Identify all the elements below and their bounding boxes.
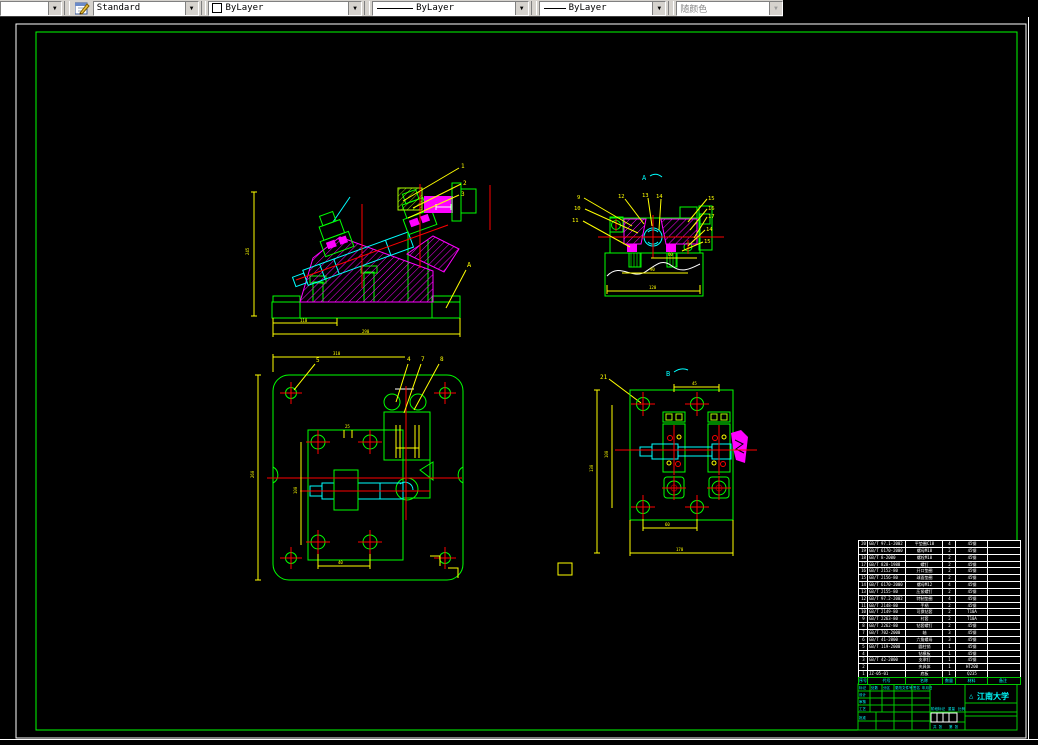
parts-cell: [988, 548, 1020, 554]
text-style-icon[interactable]: [74, 1, 91, 16]
parts-cell: 45钢: [956, 589, 988, 595]
linetype-value: ByLayer: [413, 3, 515, 13]
parts-cell: 3: [943, 637, 956, 643]
linetype-combo[interactable]: ByLayer ▼: [372, 1, 529, 16]
svg-text:12: 12: [618, 194, 625, 200]
plot-style-value: 随颜色: [677, 2, 769, 15]
parts-row: 16GB/T 2152-80开口垫圈245钢: [859, 568, 1020, 575]
parts-cell: [988, 562, 1020, 568]
university-logo-icon: △: [969, 692, 974, 700]
svg-text:4: 4: [407, 356, 411, 363]
section-a-view[interactable]: A: [572, 174, 724, 296]
parts-cell: 手柄: [906, 603, 943, 609]
chevron-down-icon[interactable]: ▼: [652, 2, 665, 15]
parts-cell: 钻套螺钉: [906, 623, 943, 629]
plot-style-combo: 随颜色 ▼: [676, 1, 783, 16]
cad-application-window: ▼ Standard ▼ ByLayer ▼ ByLayer: [0, 0, 1038, 745]
parts-row: 20GB/T 97.1-2002平垫圈C10445钢: [859, 541, 1020, 548]
parts-cell: 支承钉: [906, 657, 943, 663]
parts-cell: GB/T 6170-2000: [868, 582, 906, 588]
parts-row: 10GB/T 2149-80可换钻套2T10A: [859, 609, 1020, 616]
parts-cell: 17: [859, 562, 868, 568]
parts-cell: GB/T 2149-80: [868, 609, 906, 615]
parts-cell: 2: [943, 616, 956, 622]
svg-text:签名: 签名: [913, 685, 920, 690]
parts-row: 14GB/T 6170-2000螺母M12445钢: [859, 582, 1020, 589]
parts-cell: 2: [859, 664, 868, 670]
leader-label: 3: [461, 191, 465, 198]
parts-cell: [988, 596, 1020, 602]
parts-row: 4钻模板145钢: [859, 651, 1020, 658]
parts-table-body: 20GB/T 97.1-2002平垫圈C10445钢19GB/T 6170-20…: [859, 541, 1020, 678]
leader-labels: 1 2 3 A: [461, 163, 472, 269]
parts-row: 3GB/T 42-2000支承钉145钢: [859, 657, 1020, 664]
parts-cell: 4: [943, 541, 956, 547]
parts-cell: [868, 651, 906, 657]
parts-cell: [988, 609, 1020, 615]
parts-cell: 压紧螺钉: [906, 589, 943, 595]
centerlines: [267, 386, 462, 520]
parts-col-header: 名称: [906, 678, 943, 684]
parts-row: 15GB/T 2156-80球面垫圈245钢: [859, 575, 1020, 582]
parts-cell: [988, 575, 1020, 581]
svg-text:工艺: 工艺: [859, 706, 867, 711]
parts-cell: 45钢: [956, 623, 988, 629]
svg-text:7: 7: [421, 356, 425, 363]
svg-text:245: 245: [245, 247, 250, 255]
parts-cell: 45钢: [956, 596, 988, 602]
toolbar-separator: [201, 1, 207, 15]
svg-text:90: 90: [650, 267, 655, 272]
parts-cell: GB/T 2155-80: [868, 589, 906, 595]
parts-col-header: 序号: [859, 678, 868, 684]
parts-cell: [988, 582, 1020, 588]
parts-cell: 圆柱销: [906, 644, 943, 650]
object-color-value: ByLayer: [222, 3, 348, 13]
parts-cell: 45钢: [956, 657, 988, 663]
parts-cell: T10A: [956, 609, 988, 615]
svg-text:8: 8: [440, 356, 444, 363]
parts-cell: 45钢: [956, 548, 988, 554]
university-name: 江南大学: [977, 691, 1009, 701]
parts-cell: [988, 623, 1020, 629]
svg-text:标记: 标记: [859, 685, 867, 690]
object-color-combo[interactable]: ByLayer ▼: [208, 1, 362, 16]
parts-cell: [988, 651, 1020, 657]
svg-text:290: 290: [362, 329, 370, 334]
svg-text:年月日: 年月日: [922, 685, 933, 690]
parts-cell: 六角螺母: [906, 637, 943, 643]
parts-cell: 1: [943, 651, 956, 657]
svg-text:17: 17: [708, 214, 715, 220]
svg-text:处数: 处数: [871, 685, 879, 690]
parts-col-header: 材料: [956, 678, 988, 684]
parts-cell: 4: [943, 596, 956, 602]
parts-cell: 3: [859, 657, 868, 663]
section-mark: B: [666, 370, 670, 378]
parts-cell: T10A: [956, 616, 988, 622]
parts-col-header: 代号: [868, 678, 906, 684]
parts-cell: 11: [859, 603, 868, 609]
parts-cell: GB/T 119-2000: [868, 644, 906, 650]
parts-row: 5GB/T 119-2000圆柱销145钢: [859, 644, 1020, 651]
parts-cell: 9: [859, 616, 868, 622]
parts-cell: 螺栓M10: [906, 555, 943, 561]
parts-cell: GB/T 828-1988: [868, 562, 906, 568]
svg-text:第 张: 第 张: [949, 724, 959, 729]
svg-text:100: 100: [604, 450, 609, 458]
svg-text:40: 40: [338, 560, 343, 565]
svg-text:130: 130: [589, 464, 594, 472]
chevron-down-icon: ▼: [769, 2, 782, 15]
parts-cell: GB/T 2263-80: [868, 616, 906, 622]
parts-cell: 45钢: [956, 637, 988, 643]
parts-row: 6GB/T 41-2000六角螺母345钢: [859, 637, 1020, 644]
parts-cell: 4: [859, 651, 868, 657]
parts-cell: [988, 555, 1020, 561]
parts-cell: 45钢: [956, 582, 988, 588]
svg-text:分区: 分区: [883, 685, 891, 690]
parts-cell: [988, 589, 1020, 595]
svg-text:15: 15: [704, 239, 711, 245]
view-b[interactable]: B 21: [589, 369, 757, 556]
chevron-down-icon[interactable]: ▼: [185, 2, 198, 15]
parts-cell: GB/T 2148-80: [868, 603, 906, 609]
parts-cell: 16: [859, 568, 868, 574]
leader-line: [609, 379, 641, 403]
parts-row: 8GB/T 2262-80钻套螺钉245钢: [859, 623, 1020, 630]
lineweight-combo[interactable]: ByLayer ▼: [539, 1, 667, 16]
parts-cell: 2: [943, 555, 956, 561]
leader-label: 21: [600, 374, 608, 381]
parts-cell: 45钢: [956, 555, 988, 561]
parts-cell: 2: [943, 548, 956, 554]
parts-cell: 2: [943, 609, 956, 615]
parts-cell: [988, 568, 1020, 574]
chevron-down-icon[interactable]: ▼: [348, 2, 361, 15]
parts-cell: [988, 630, 1020, 636]
parts-cell: GB/T 97.2-2002: [868, 596, 906, 602]
parts-cell: 2: [943, 603, 956, 609]
parts-cell: GB/T 8-2000: [868, 555, 906, 561]
toolbar-separator: [668, 1, 674, 15]
svg-text:60: 60: [668, 252, 673, 257]
svg-text:13: 13: [642, 193, 649, 199]
parts-row: 12GB/T 97.2-2002特制垫圈445钢: [859, 596, 1020, 603]
parts-cell: 螺钉: [906, 562, 943, 568]
svg-text:重量: 重量: [948, 706, 956, 711]
svg-text:60: 60: [665, 522, 670, 527]
svg-text:共 张: 共 张: [933, 724, 943, 729]
parts-cell: 8: [859, 623, 868, 629]
svg-text:设计: 设计: [859, 692, 867, 697]
svg-text:批准: 批准: [859, 715, 867, 720]
parts-cell: 2: [943, 562, 956, 568]
parts-cell: [988, 657, 1020, 663]
parts-cell: 1: [943, 657, 956, 663]
hatch-right: [661, 219, 697, 244]
parts-cell: GB/T 41-2000: [868, 637, 906, 643]
parts-cell: 14: [859, 582, 868, 588]
section-arrow-label: A: [467, 261, 472, 269]
parts-row: 19GB/T 6170-2000螺母M10245钢: [859, 548, 1020, 555]
front-view[interactable]: 1 2 3 A 245 110 290: [245, 163, 490, 337]
linetype-sample-icon: [377, 8, 413, 9]
parts-cell: 可换钻套: [906, 609, 943, 615]
parts-cell: GB/T 2262-80: [868, 623, 906, 629]
parts-row: 13GB/T 2155-80压紧螺钉245钢: [859, 589, 1020, 596]
parts-cell: 20: [859, 541, 868, 547]
parts-cell: [988, 541, 1020, 547]
parts-cell: 夹具体: [906, 664, 943, 670]
text-style-combo[interactable]: Standard ▼: [93, 1, 199, 16]
parts-cell: 2: [943, 589, 956, 595]
parts-list-table: 20GB/T 97.1-2002平垫圈C10445钢19GB/T 6170-20…: [858, 540, 1021, 679]
parts-cell: 18: [859, 555, 868, 561]
parts-cell: HT200: [956, 664, 988, 670]
parts-cell: 3: [943, 630, 956, 636]
stage-mark-boxes: [931, 713, 957, 722]
parts-cell: 钻模板: [906, 651, 943, 657]
parts-cell: 2: [943, 568, 956, 574]
parts-cell: GB/T 2152-80: [868, 568, 906, 574]
parts-cell: [988, 603, 1020, 609]
parts-cell: 45钢: [956, 568, 988, 574]
svg-text:310: 310: [333, 351, 341, 356]
toolbar-separator: [364, 1, 370, 15]
svg-text:16: 16: [708, 206, 715, 212]
svg-text:比例: 比例: [958, 706, 966, 711]
parts-row: 2夹具体1HT200: [859, 664, 1020, 671]
parts-cell: 6: [859, 637, 868, 643]
svg-text:100: 100: [293, 486, 298, 494]
svg-text:14: 14: [656, 194, 663, 200]
svg-text:更改文件号: 更改文件号: [895, 685, 913, 690]
parts-cell: 螺母M12: [906, 582, 943, 588]
svg-text:120: 120: [649, 285, 657, 290]
leader-lines: [294, 364, 439, 413]
parts-row: 9GB/T 2263-80衬套2T10A: [859, 616, 1020, 623]
adjusting-nut-assembly: [398, 183, 476, 221]
svg-text:14: 14: [706, 227, 713, 233]
parts-cell: GB/T 6170-2000: [868, 548, 906, 554]
parts-cell: 12: [859, 596, 868, 602]
svg-text:15: 15: [708, 196, 715, 202]
parts-cell: 7: [859, 630, 868, 636]
chevron-down-icon[interactable]: ▼: [515, 2, 528, 15]
svg-text:260: 260: [250, 470, 255, 478]
parts-cell: 螺母M10: [906, 548, 943, 554]
parts-cell: 45钢: [956, 575, 988, 581]
parts-row: 7GB/T 702-2000轴345钢: [859, 630, 1020, 637]
parts-cell: [988, 644, 1020, 650]
parts-cell: [868, 664, 906, 670]
parts-row: 11GB/T 2148-80手柄245钢: [859, 603, 1020, 610]
parts-cell: 特制垫圈: [906, 596, 943, 602]
parts-cell: 19: [859, 548, 868, 554]
parts-cell: 45钢: [956, 651, 988, 657]
chevron-down-icon[interactable]: ▼: [48, 2, 61, 15]
toolbar-separator: [64, 1, 70, 15]
svg-text:阶段标记: 阶段标记: [931, 706, 945, 711]
text-style-icon-glyph: [75, 1, 90, 15]
section-mark: A: [642, 174, 647, 182]
seat-left: [627, 244, 637, 252]
svg-text:5: 5: [316, 357, 320, 364]
parts-cell: 平垫圈C10: [906, 541, 943, 547]
toolbar-separator: [531, 1, 537, 15]
layer-combo-partial[interactable]: ▼: [0, 1, 62, 16]
title-block: 标记 处数 分区 更改文件号 签名 年月日 设计 审核 工艺 批准 阶段标记 重…: [858, 684, 1017, 730]
parts-cell: 4: [943, 582, 956, 588]
parts-cell: 1: [943, 644, 956, 650]
parts-cell: GB/T 2156-80: [868, 575, 906, 581]
svg-text:11: 11: [572, 218, 579, 224]
sub-plate-holes: [306, 430, 382, 554]
parts-row: 17GB/T 828-1988螺钉245钢: [859, 562, 1020, 569]
svg-text:审核: 审核: [859, 699, 867, 704]
color-swatch-icon: [212, 3, 222, 13]
svg-text:45: 45: [692, 381, 697, 386]
parts-cell: [988, 664, 1020, 670]
leader-label: 2: [463, 180, 467, 187]
parts-cell: 开口垫圈: [906, 568, 943, 574]
section-mark-line: [674, 369, 688, 372]
seat-right: [666, 244, 676, 252]
lineweight-sample-icon: [544, 8, 566, 9]
svg-text:25: 25: [345, 424, 350, 429]
parts-cell: 10: [859, 609, 868, 615]
parts-cell: 衬套: [906, 616, 943, 622]
parts-cell: [988, 637, 1020, 643]
parts-cell: GB/T 702-2000: [868, 630, 906, 636]
parts-list-header: 序号 代号 名称 数量 材料 备注: [858, 677, 1021, 685]
svg-text:110: 110: [300, 318, 308, 323]
parts-cell: 45钢: [956, 541, 988, 547]
text-style-value: Standard: [94, 3, 185, 13]
parts-col-header: 数量: [943, 678, 956, 684]
dimensions: [255, 354, 572, 580]
svg-text:10: 10: [574, 206, 581, 212]
parts-cell: 2: [943, 575, 956, 581]
parts-cell: 5: [859, 644, 868, 650]
parts-cell: 13: [859, 589, 868, 595]
parts-cell: 15: [859, 575, 868, 581]
properties-toolbar: ▼ Standard ▼ ByLayer ▼ ByLayer: [0, 0, 783, 17]
parts-cell: 轴: [906, 630, 943, 636]
parts-row: 18GB/T 8-2000螺栓M10245钢: [859, 555, 1020, 562]
parts-cell: [988, 616, 1020, 622]
parts-cell: 1: [943, 664, 956, 670]
parts-col-header: 备注: [988, 678, 1018, 684]
svg-text:170: 170: [676, 547, 684, 552]
section-mark-line: [650, 174, 662, 177]
lineweight-value: ByLayer: [566, 3, 653, 13]
clamp-block-plan: [334, 470, 358, 510]
parts-cell: 2: [943, 623, 956, 629]
parts-cell: 45钢: [956, 603, 988, 609]
parts-cell: GB/T 42-2000: [868, 657, 906, 663]
parts-cell: 45钢: [956, 630, 988, 636]
parts-cell: 45钢: [956, 562, 988, 568]
parts-cell: 45钢: [956, 644, 988, 650]
svg-text:9: 9: [577, 195, 580, 201]
leader-label: 1: [461, 163, 465, 170]
plan-view[interactable]: 5 4 7 8 310 260 10: [250, 351, 572, 580]
parts-cell: GB/T 97.1-2002: [868, 541, 906, 547]
parts-cell: 球面垫圈: [906, 575, 943, 581]
